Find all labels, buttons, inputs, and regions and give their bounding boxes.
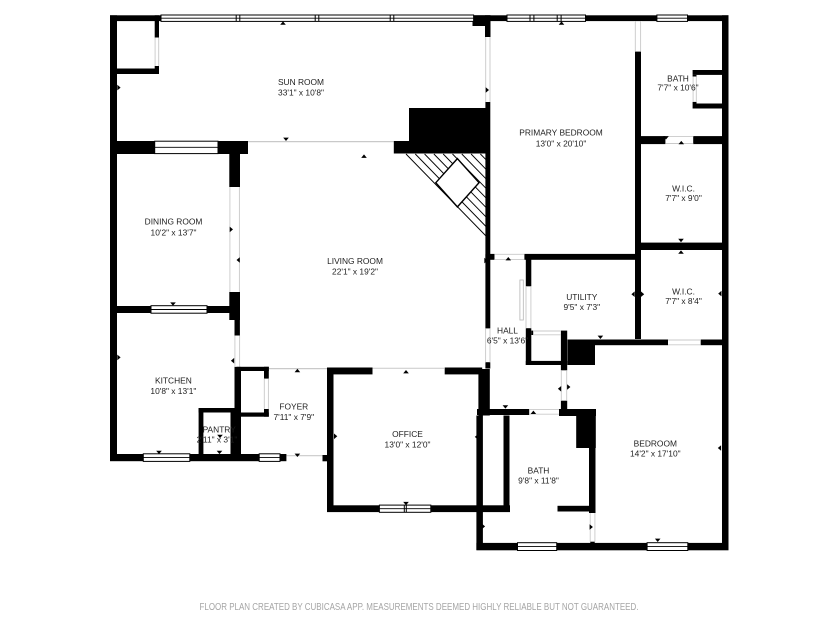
svg-text:FLOOR PLAN CREATED BY CUBICASA: FLOOR PLAN CREATED BY CUBICASA APP. MEAS… xyxy=(200,602,639,613)
svg-text:7'7" x 9'0": 7'7" x 9'0" xyxy=(665,193,702,203)
svg-text:SUN ROOM: SUN ROOM xyxy=(278,77,324,87)
svg-text:BEDROOM: BEDROOM xyxy=(634,438,677,448)
svg-text:OFFICE: OFFICE xyxy=(392,429,423,439)
svg-text:DINING ROOM: DINING ROOM xyxy=(145,217,203,227)
svg-text:KITCHEN: KITCHEN xyxy=(155,375,192,385)
svg-text:BATH: BATH xyxy=(528,465,550,475)
svg-text:W.I.C.: W.I.C. xyxy=(672,286,695,296)
svg-text:9'5" x 7'3": 9'5" x 7'3" xyxy=(563,302,600,312)
svg-text:7'7" x 8'4": 7'7" x 8'4" xyxy=(665,296,702,306)
svg-text:2'11" x 3'1": 2'11" x 3'1" xyxy=(197,434,238,444)
svg-text:W.I.C.: W.I.C. xyxy=(672,183,695,193)
svg-text:6'5" x 13'6": 6'5" x 13'6" xyxy=(487,336,528,346)
svg-text:PRIMARY BEDROOM: PRIMARY BEDROOM xyxy=(519,128,602,138)
svg-text:13'0" x 20'10": 13'0" x 20'10" xyxy=(536,139,587,149)
svg-text:14'2" x 17'10": 14'2" x 17'10" xyxy=(630,448,681,458)
svg-text:22'1" x 19'2": 22'1" x 19'2" xyxy=(332,266,378,276)
svg-text:PANTRY: PANTRY xyxy=(203,424,237,434)
svg-text:33'1" x 10'8": 33'1" x 10'8" xyxy=(278,88,324,98)
svg-text:9'8" x 11'8": 9'8" x 11'8" xyxy=(518,475,559,485)
svg-text:10'8" x 13'1": 10'8" x 13'1" xyxy=(150,386,196,396)
svg-text:UTILITY: UTILITY xyxy=(566,292,598,302)
svg-text:13'0" x 12'0": 13'0" x 12'0" xyxy=(385,439,431,449)
svg-text:10'2" x 13'7": 10'2" x 13'7" xyxy=(151,227,197,237)
svg-text:FOYER: FOYER xyxy=(279,402,308,412)
svg-text:7'7" x 10'6": 7'7" x 10'6" xyxy=(657,83,698,93)
svg-text:7'11" x 7'9": 7'11" x 7'9" xyxy=(273,412,314,422)
svg-text:HALL: HALL xyxy=(497,326,518,336)
svg-text:LIVING ROOM: LIVING ROOM xyxy=(327,256,383,266)
